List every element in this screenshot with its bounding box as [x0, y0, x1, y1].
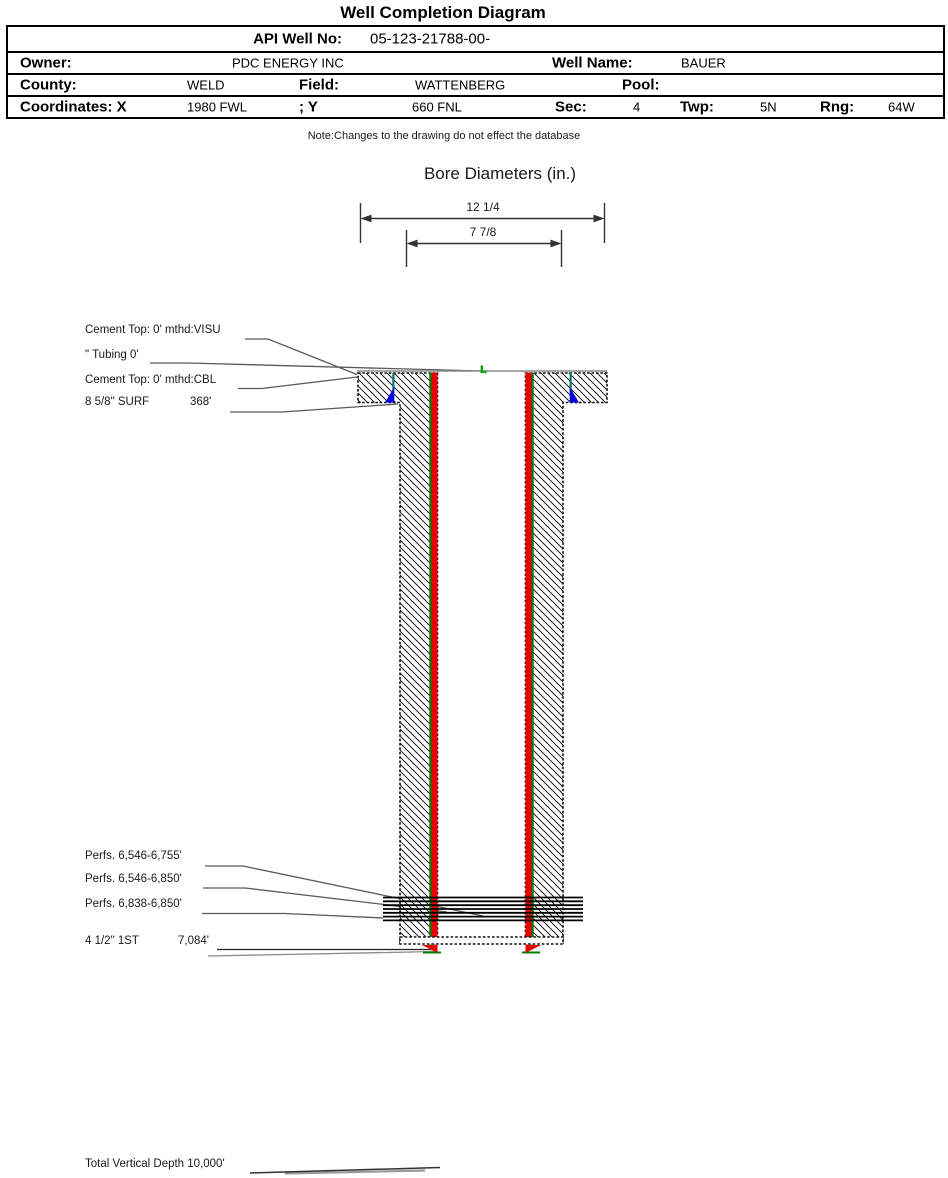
right-production-casing	[526, 373, 532, 945]
perfs-3-label: Perfs. 6,838-6,850'	[85, 898, 182, 911]
left-cement-block	[358, 373, 438, 943]
cement-top-cbl-leader	[238, 377, 357, 389]
tubing-leader	[150, 363, 481, 371]
left-shoe-base	[423, 952, 441, 954]
bottom-plug-bar	[400, 937, 563, 944]
cement-top-cbl-label: Cement Top: 0' mthd:CBL	[85, 374, 216, 387]
tubing-label: " Tubing 0'	[85, 349, 139, 362]
perfs-3-leader	[202, 914, 383, 919]
wellbore	[357, 366, 607, 954]
cement-top-visu-label: Cement Top: 0' mthd:VISU	[85, 324, 221, 337]
surface-casing-depth: 368'	[190, 396, 211, 409]
tubing-tick-foot	[481, 371, 487, 373]
right-shoe-base	[522, 952, 540, 954]
bore-diameter-dimensions	[361, 203, 605, 267]
surface-casing-leader	[230, 404, 398, 412]
total-vertical-depth-label: Total Vertical Depth 10,000'	[85, 1158, 225, 1171]
perfs-1-label: Perfs. 6,546-6,755'	[85, 850, 182, 863]
perforations	[383, 898, 583, 921]
production-casing-label: 4 1/2" 1ST	[85, 935, 139, 948]
cement-top-visu-leader	[245, 339, 357, 375]
well-diagram-canvas	[0, 0, 948, 1178]
right-cement-block	[526, 373, 608, 943]
left-production-casing	[432, 373, 438, 945]
surface-casing-label: 8 5/8" SURF	[85, 396, 149, 409]
well-completion-report: Well Completion Diagram API Well No: 05-…	[0, 0, 948, 1178]
right-liner-line	[532, 373, 534, 945]
perfs-2-label: Perfs. 6,546-6,850'	[85, 873, 182, 886]
left-liner-line	[429, 373, 431, 945]
production-casing-depth: 7,084'	[178, 935, 209, 948]
